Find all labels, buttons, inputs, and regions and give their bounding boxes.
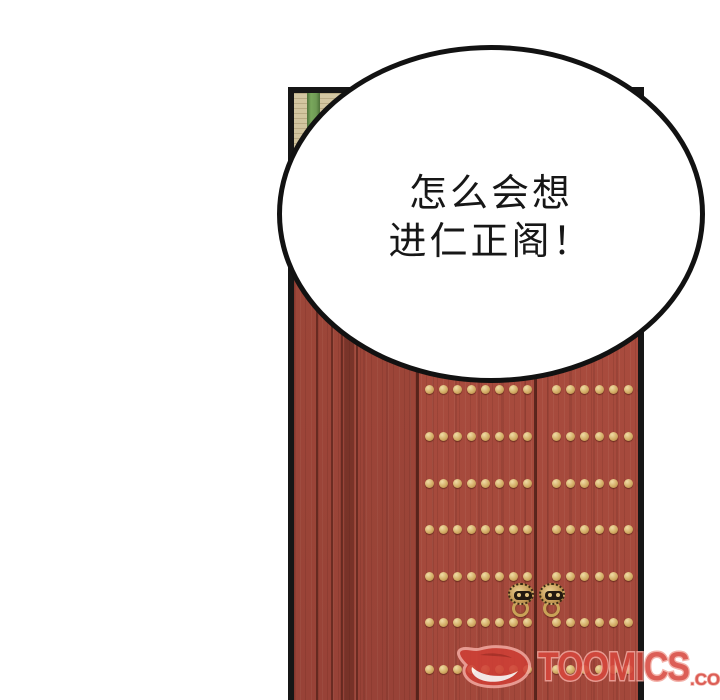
door-stud <box>624 432 633 441</box>
door-stud <box>638 479 644 488</box>
door-stud <box>425 385 434 394</box>
door-stud <box>624 525 633 534</box>
bubble-text-line-1: 怎么会想 <box>409 170 573 218</box>
door-stud <box>609 432 618 441</box>
door-stud <box>467 479 476 488</box>
frame-plank-seam <box>316 268 318 700</box>
door-stud <box>425 572 434 581</box>
door-stud <box>425 479 434 488</box>
door-stud <box>481 432 490 441</box>
lion-eye-icon <box>517 593 521 597</box>
door-stud <box>580 432 589 441</box>
door-stud <box>624 479 633 488</box>
door-stud <box>453 385 462 394</box>
door-stud <box>439 479 448 488</box>
door-stud <box>439 572 448 581</box>
door-stud <box>495 525 504 534</box>
watermark-suffix-text: .COM <box>690 667 720 693</box>
door-stud <box>566 525 575 534</box>
door-stud <box>495 385 504 394</box>
lion-head-icon <box>539 583 565 605</box>
door-stud <box>624 572 633 581</box>
door-stud <box>624 385 633 394</box>
door-stud <box>495 479 504 488</box>
door-stud <box>552 572 561 581</box>
door-stud <box>467 618 476 627</box>
door-stud <box>609 385 618 394</box>
door-stud <box>495 618 504 627</box>
bubble-text-line-2: 进仁正阁！ <box>388 218 593 266</box>
door-stud <box>481 572 490 581</box>
door-stud <box>566 572 575 581</box>
lion-eye-icon <box>525 593 529 597</box>
door-stud <box>580 385 589 394</box>
door-stud <box>595 572 604 581</box>
door-stud <box>595 479 604 488</box>
frame-plank-seam <box>331 268 333 700</box>
door-stud <box>638 572 644 581</box>
toomics-logo-icon <box>452 643 544 693</box>
door-stud <box>481 525 490 534</box>
door-stud <box>566 385 575 394</box>
door-stud <box>523 572 532 581</box>
door-stud <box>566 432 575 441</box>
door-stud <box>638 385 644 394</box>
door-stud <box>425 432 434 441</box>
lion-eye-icon <box>556 593 560 597</box>
door-stud <box>467 432 476 441</box>
door-stud <box>509 525 518 534</box>
door-stud <box>552 385 561 394</box>
door-stud <box>453 479 462 488</box>
door-stud <box>467 572 476 581</box>
door-stud <box>523 385 532 394</box>
door-stud <box>481 385 490 394</box>
door-stud <box>453 525 462 534</box>
door-stud <box>495 432 504 441</box>
door-stud <box>580 525 589 534</box>
door-stud <box>509 385 518 394</box>
door-stud <box>439 618 448 627</box>
door-stud <box>552 432 561 441</box>
door-stud <box>509 572 518 581</box>
toomics-watermark: TOOMICS .COM <box>452 641 720 693</box>
door-stud <box>425 618 434 627</box>
door-stud <box>453 618 462 627</box>
door-stud <box>481 618 490 627</box>
lion-face <box>545 591 563 600</box>
door-stud <box>453 432 462 441</box>
door-stud <box>509 479 518 488</box>
door-stud <box>580 618 589 627</box>
door-stud <box>523 525 532 534</box>
door-knocker-right <box>539 583 565 619</box>
door-stud <box>638 618 644 627</box>
door-stud <box>580 479 589 488</box>
door-stud <box>609 525 618 534</box>
door-stud <box>467 525 476 534</box>
door-stud <box>595 618 604 627</box>
door-stud <box>552 479 561 488</box>
door-stud <box>609 572 618 581</box>
door-stud <box>495 572 504 581</box>
door-stud <box>552 525 561 534</box>
door-stud <box>609 479 618 488</box>
watermark-brand-text: TOOMICS <box>538 641 689 693</box>
door-stud <box>595 432 604 441</box>
door-stud <box>509 432 518 441</box>
lion-eye-icon <box>548 593 552 597</box>
door-stud <box>481 479 490 488</box>
door-stud <box>595 385 604 394</box>
door-stud <box>523 479 532 488</box>
door-stud <box>425 665 434 674</box>
door-stud <box>439 385 448 394</box>
speech-bubble: 怎么会想 进仁正阁！ <box>277 45 705 383</box>
door-stud <box>595 525 604 534</box>
door-stud <box>467 385 476 394</box>
door-stud <box>624 618 633 627</box>
door-stud <box>566 618 575 627</box>
door-stud <box>580 572 589 581</box>
door-stud <box>453 572 462 581</box>
door-stud <box>523 432 532 441</box>
door-stud <box>638 432 644 441</box>
door-stud <box>425 525 434 534</box>
door-stud <box>439 665 448 674</box>
lion-face <box>514 591 532 600</box>
door-stud <box>566 479 575 488</box>
door-knocker-left <box>508 583 534 619</box>
comic-page: 怎么会想 进仁正阁！ TOOMICS .COM <box>0 0 720 700</box>
door-stud <box>439 432 448 441</box>
door-stud <box>638 525 644 534</box>
lion-head-icon <box>508 583 534 605</box>
door-stud <box>609 618 618 627</box>
door-stud <box>439 525 448 534</box>
